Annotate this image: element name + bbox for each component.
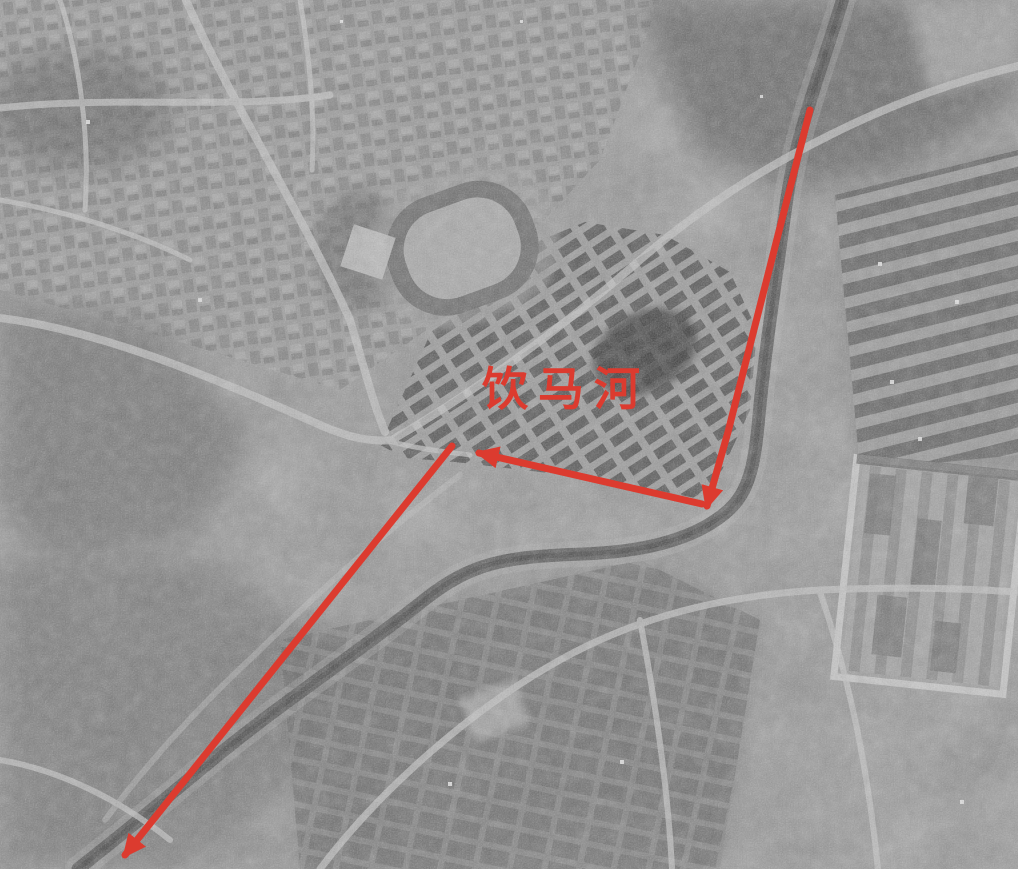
aerial-photo-annotated: 饮马河	[0, 0, 1018, 869]
river-course-arrow-middle	[479, 453, 702, 504]
river-course-arrow-south	[125, 446, 452, 855]
river-label: 饮马河	[482, 366, 650, 412]
annotation-layer	[0, 0, 1018, 869]
river-course-arrow-north	[707, 110, 810, 506]
